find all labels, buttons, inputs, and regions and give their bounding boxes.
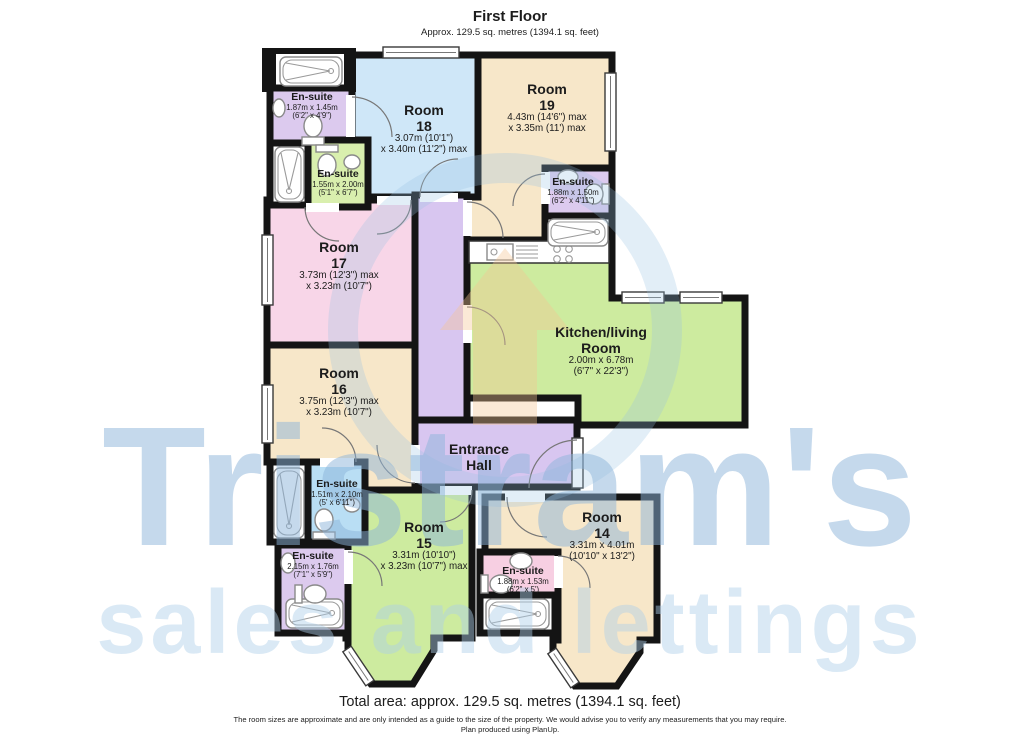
room-17-label: Room 17 3.73m (12'3") max x 3.23m (10'7"… (254, 240, 424, 293)
ensuite-right-label: En-suite 1.88m x 1.50m (6'2" x 4'11") (513, 177, 633, 206)
window-icon (680, 292, 722, 303)
window-icon (622, 292, 664, 303)
room-16-label: Room 16 3.75m (12'3") max x 3.23m (10'7"… (254, 366, 424, 419)
door-gap (440, 486, 472, 495)
window-icon (383, 47, 459, 58)
toilet-icon (313, 509, 335, 539)
door-gap (306, 203, 339, 212)
bath-icon (548, 219, 608, 246)
room-19-label: Room 19 4.43m (14'6") max x 3.35m (11') … (462, 82, 632, 135)
entrance-hall-label: Entrance Hall (394, 442, 564, 473)
door-gap (420, 193, 458, 202)
room-14-label: Room 14 3.31m x 4.01m (10'10" x 13'2") (517, 510, 687, 563)
disclaimer-text: The room sizes are approximate and are o… (0, 715, 1020, 724)
door-gap (463, 305, 472, 343)
floorplan-page: First Floor Approx. 129.5 sq. metres (13… (0, 0, 1020, 742)
door-gap (505, 493, 545, 502)
ensuite-pink-label: En-suite 1.88m x 1.53m (6'2" x 5') (463, 566, 583, 595)
ensuite-green-label: En-suite 1.55m x 2.00m (5'1" x 6'7") (278, 169, 398, 198)
kitchen-living-label: Kitchen/living Room 2.00m x 6.78m (6'7" … (516, 325, 686, 378)
ensuite-left-label: En-suite 2.15m x 1.76m (7'1" x 5'9") (253, 551, 373, 580)
basin-icon (344, 155, 360, 169)
plan-header: First Floor Approx. 129.5 sq. metres (13… (0, 8, 1020, 38)
door-gap (463, 200, 472, 236)
front-door-leaf (572, 438, 583, 488)
bath-icon (486, 599, 549, 629)
produced-by-text: Plan produced using PlanUp. (0, 725, 1020, 734)
ensuite-blue-label: En-suite 1.51m x 2.10m (5' x 6'11") (277, 479, 397, 508)
page-title: First Floor (0, 8, 1020, 25)
door-gap (320, 458, 354, 467)
total-area-text: Total area: approx. 129.5 sq. metres (13… (0, 694, 1020, 710)
toilet-icon (295, 585, 326, 603)
ensuite-tl-label: En-suite 1.87m x 1.45m (6'2" x 4'9") (252, 92, 372, 121)
bath-icon (280, 57, 342, 86)
page-subtitle: Approx. 129.5 sq. metres (1394.1 sq. fee… (0, 27, 1020, 38)
